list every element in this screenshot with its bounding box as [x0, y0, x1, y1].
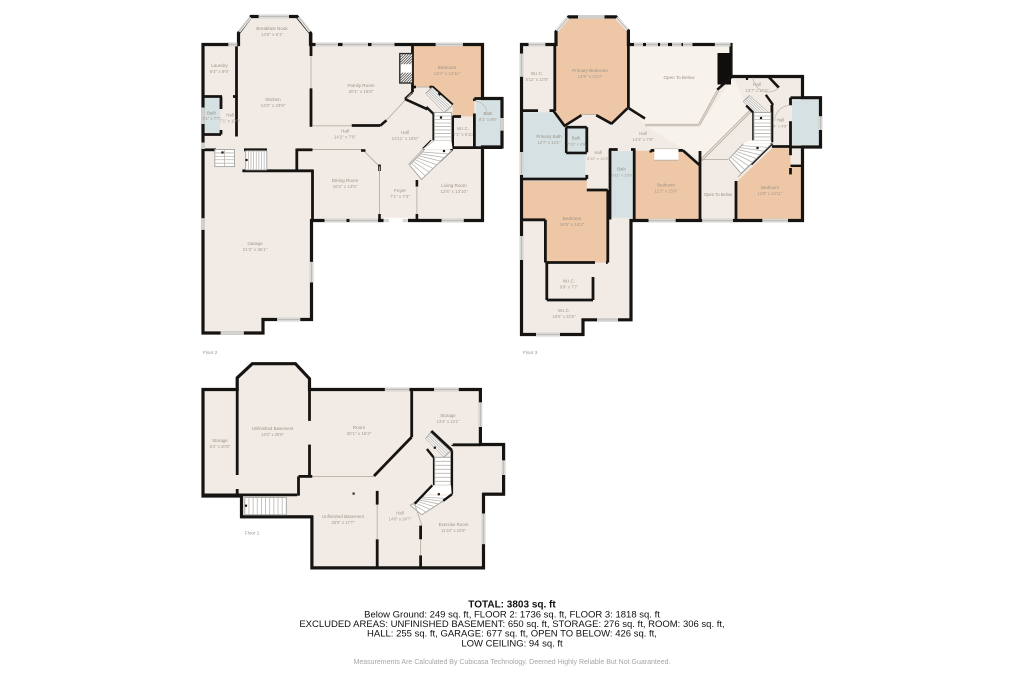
svg-text:14'0" x 6'1": 14'0" x 6'1": [261, 32, 284, 37]
svg-text:Floor 1: Floor 1: [245, 531, 260, 536]
svg-text:7'1" x 10'3": 7'1" x 10'3": [220, 118, 241, 123]
svg-text:Bedroom: Bedroom: [563, 216, 582, 221]
svg-text:Exercise Room: Exercise Room: [439, 522, 469, 527]
svg-text:Hall: Hall: [594, 150, 601, 155]
svg-text:Breakfast Nook: Breakfast Nook: [256, 26, 288, 31]
svg-text:Floor 2: Floor 2: [203, 350, 218, 355]
svg-text:14'0" x 23'8": 14'0" x 23'8": [261, 103, 286, 108]
svg-text:6'4" x 9'9": 6'4" x 9'9": [210, 69, 230, 74]
svg-text:Bedroom: Bedroom: [761, 185, 779, 190]
svg-text:Open To Below: Open To Below: [704, 192, 733, 197]
svg-text:Room: Room: [353, 425, 365, 430]
svg-text:Garage: Garage: [247, 241, 263, 246]
svg-text:Unfinished Basement: Unfinished Basement: [252, 426, 295, 431]
svg-text:9'11" x 13'9: 9'11" x 13'9: [611, 172, 632, 177]
svg-text:Bath: Bath: [207, 110, 217, 115]
svg-text:11'10" x 22'8": 11'10" x 22'8": [441, 528, 466, 533]
svg-text:20'1" x 15'8": 20'1" x 15'8": [349, 89, 374, 94]
svg-text:W.I.C.: W.I.C.: [558, 308, 570, 313]
svg-text:5'11" x 12'8": 5'11" x 12'8": [526, 77, 549, 82]
svg-text:Laundry: Laundry: [211, 63, 228, 68]
svg-text:16'2" x 13'5": 16'2" x 13'5": [333, 184, 358, 189]
svg-text:12'6" x 13'10": 12'6" x 13'10": [440, 189, 468, 194]
svg-text:Storage: Storage: [440, 413, 456, 418]
svg-text:Kitchen: Kitchen: [265, 97, 281, 102]
svg-text:16'9" x 16'2": 16'9" x 16'2": [560, 222, 585, 227]
svg-text:W.I.C.: W.I.C.: [563, 279, 575, 284]
svg-text:Unfinished Basement: Unfinished Basement: [322, 514, 365, 519]
svg-text:Bedroom: Bedroom: [438, 65, 457, 70]
svg-text:Bedroom: Bedroom: [657, 183, 675, 188]
svg-text:13'4" x 13'11": 13'4" x 13'11": [434, 71, 461, 76]
svg-text:Living Room: Living Room: [441, 183, 467, 188]
svg-text:Hall: Hall: [396, 511, 404, 516]
svg-text:14'0" x 25'9": 14'0" x 25'9": [261, 432, 284, 437]
svg-text:W.I.C.: W.I.C.: [531, 71, 543, 76]
svg-text:W.I.C.: W.I.C.: [457, 126, 469, 131]
svg-text:Family Room: Family Room: [347, 83, 374, 88]
svg-text:Hall: Hall: [777, 118, 784, 123]
svg-text:Bath: Bath: [483, 111, 493, 116]
svg-text:Hall: Hall: [226, 113, 234, 118]
svg-text:LOW CEILING: 94 sq. ft: LOW CEILING: 94 sq. ft: [461, 638, 563, 649]
svg-text:14'5" x 21'0": 14'5" x 21'0": [578, 74, 603, 79]
svg-text:12'3" x 13'9": 12'3" x 13'9": [655, 188, 678, 193]
svg-text:7'1" x 5'10: 7'1" x 5'10: [453, 132, 473, 137]
svg-text:4" x 4'6": 4" x 4'6": [773, 123, 788, 128]
svg-text:14'3" x 7'6": 14'3" x 7'6": [633, 137, 654, 142]
svg-text:Bath: Bath: [572, 136, 581, 141]
svg-text:Hall: Hall: [341, 129, 349, 134]
svg-text:Bath: Bath: [617, 167, 626, 172]
svg-text:Open To Below: Open To Below: [663, 75, 695, 80]
svg-text:21'3" x 36'1": 21'3" x 36'1": [243, 247, 268, 252]
svg-text:14'2" x 7'6": 14'2" x 7'6": [334, 134, 357, 139]
svg-text:Hall: Hall: [639, 131, 647, 136]
svg-text:7'10" x 4'9: 7'10" x 4'9: [567, 141, 586, 146]
svg-text:12'8" x 13'11": 12'8" x 13'11": [758, 191, 783, 196]
svg-text:7'1" x 7'3": 7'1" x 7'3": [390, 194, 410, 199]
svg-text:6'4" x 20'6": 6'4" x 20'6": [210, 444, 231, 449]
svg-text:Primary Bath: Primary Bath: [536, 134, 562, 139]
svg-text:8'1" x 9'5": 8'1" x 9'5": [479, 117, 498, 122]
svg-text:3'1" x 7'7": 3'1" x 7'7": [202, 116, 221, 121]
svg-text:16'5" x 22'6": 16'5" x 22'6": [553, 314, 576, 319]
svg-text:Measurements Are Calculated By: Measurements Are Calculated By Cubicasa …: [354, 659, 671, 666]
svg-text:25'9" x 17'7": 25'9" x 17'7": [332, 520, 355, 525]
svg-text:Primary Bedroom: Primary Bedroom: [572, 68, 608, 73]
svg-text:9'9" x 7'7": 9'9" x 7'7": [560, 284, 579, 289]
svg-text:Dining Room: Dining Room: [332, 178, 359, 183]
svg-text:Floor 3: Floor 3: [523, 350, 538, 355]
svg-text:14'6" x 24'7": 14'6" x 24'7": [389, 516, 412, 521]
svg-text:5'10" x 10'3": 5'10" x 10'3": [587, 156, 610, 161]
svg-text:Foyer: Foyer: [394, 188, 406, 193]
svg-text:Hall: Hall: [401, 130, 409, 135]
svg-text:12'7" x 13'1": 12'7" x 13'1": [538, 140, 561, 145]
svg-text:20'1" x 16'3": 20'1" x 16'3": [347, 431, 372, 436]
svg-text:13'4" x 12'1": 13'4" x 12'1": [437, 419, 460, 424]
svg-text:13'11" x 18'8": 13'11" x 18'8": [392, 136, 419, 141]
svg-text:Storage: Storage: [212, 438, 228, 443]
